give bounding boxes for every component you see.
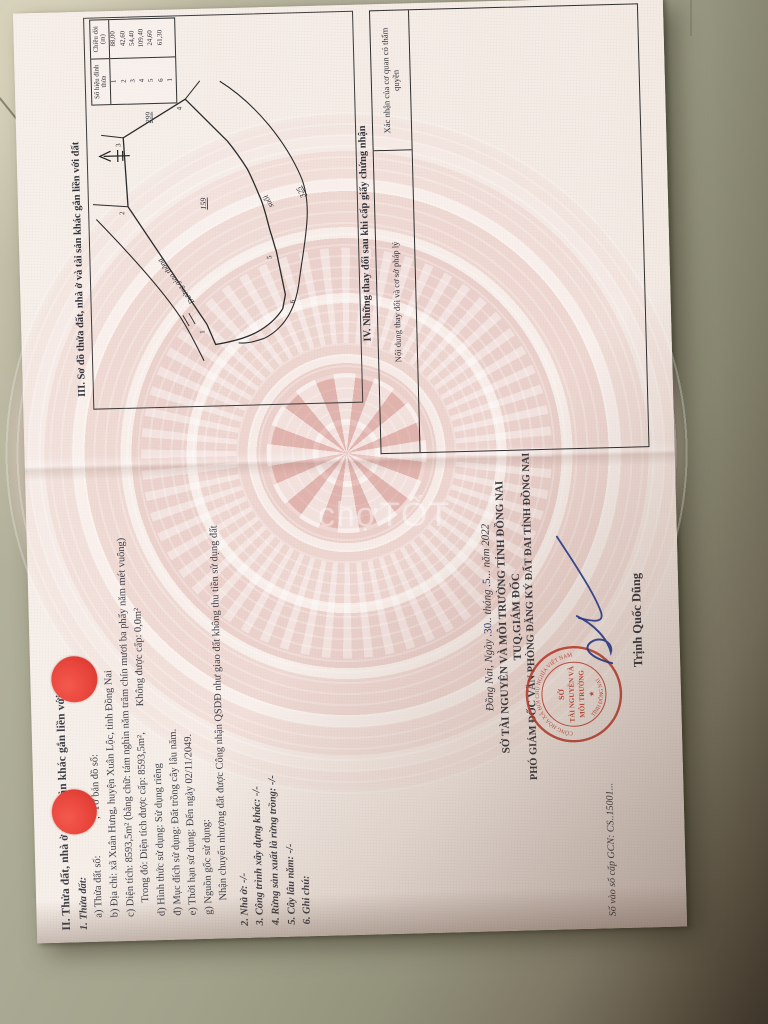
- certificate-paper: II. Thửa đất, nhà ở và tài sản khác gắn …: [13, 0, 687, 943]
- changes-col-confirm: Xác nhận của cơ quan có thẩm quyền: [370, 10, 412, 150]
- changes-col-content: Nội dung thay đổi và cơ sở pháp lý: [374, 150, 420, 453]
- parcel-number-label: 159: [199, 198, 208, 210]
- date-suffix: ... năm 2022: [479, 524, 492, 579]
- issuance-block: Đồng Nai, Ngày .30.. tháng .5... năm 202…: [477, 417, 541, 816]
- vertex-6-label: 6: [289, 299, 297, 303]
- floor-tile-seam-2: [690, 0, 692, 36]
- signature-ink: [545, 528, 634, 685]
- parcel-boundary: [122, 97, 286, 347]
- stamp-center-line-1: SỞ: [556, 688, 566, 700]
- vertex-2-label: 2: [118, 211, 126, 215]
- vertex-3-label: 3: [114, 143, 122, 147]
- col-header-vertex: Số hiệu đỉnh thửa: [91, 58, 110, 105]
- vertex-no: 1: [166, 56, 177, 103]
- date-mid: .. tháng .: [481, 584, 494, 623]
- watermark-text: chợTỐT: [318, 496, 450, 534]
- stamp-star: ★: [588, 690, 596, 696]
- segment-length-table: Số hiệu đỉnh thửa Chiều dài (m) 188,00 2…: [89, 17, 178, 105]
- parcel-map-box: 159 299 325 suối Đường giao thông 1 2 3 …: [83, 11, 363, 410]
- col-header-length: Chiều dài (m): [90, 20, 109, 58]
- neighbor-parcel-top-label: 299: [144, 112, 153, 124]
- section-2-block: II. Thửa đất, nhà ở và tài sản khác gắn …: [49, 474, 318, 931]
- date-day-handwritten: 30: [482, 623, 494, 634]
- vertex-4-label: 4: [175, 106, 183, 110]
- date-month-handwritten: 5: [481, 578, 493, 584]
- vertex-1-label: 1: [198, 330, 206, 334]
- photo-of-land-certificate: II. Thửa đất, nhà ở và tài sản khác gắn …: [0, 0, 768, 1024]
- table-row: 1: [165, 18, 176, 102]
- length-m: [165, 18, 175, 56]
- chotot-watermark: chợTỐT: [318, 496, 450, 535]
- date-prefix: Đồng Nai, Ngày .: [482, 634, 496, 712]
- vertex-5-label: 5: [265, 255, 273, 259]
- changes-table: Nội dung thay đổi và cơ sở pháp lý Xác n…: [369, 3, 650, 454]
